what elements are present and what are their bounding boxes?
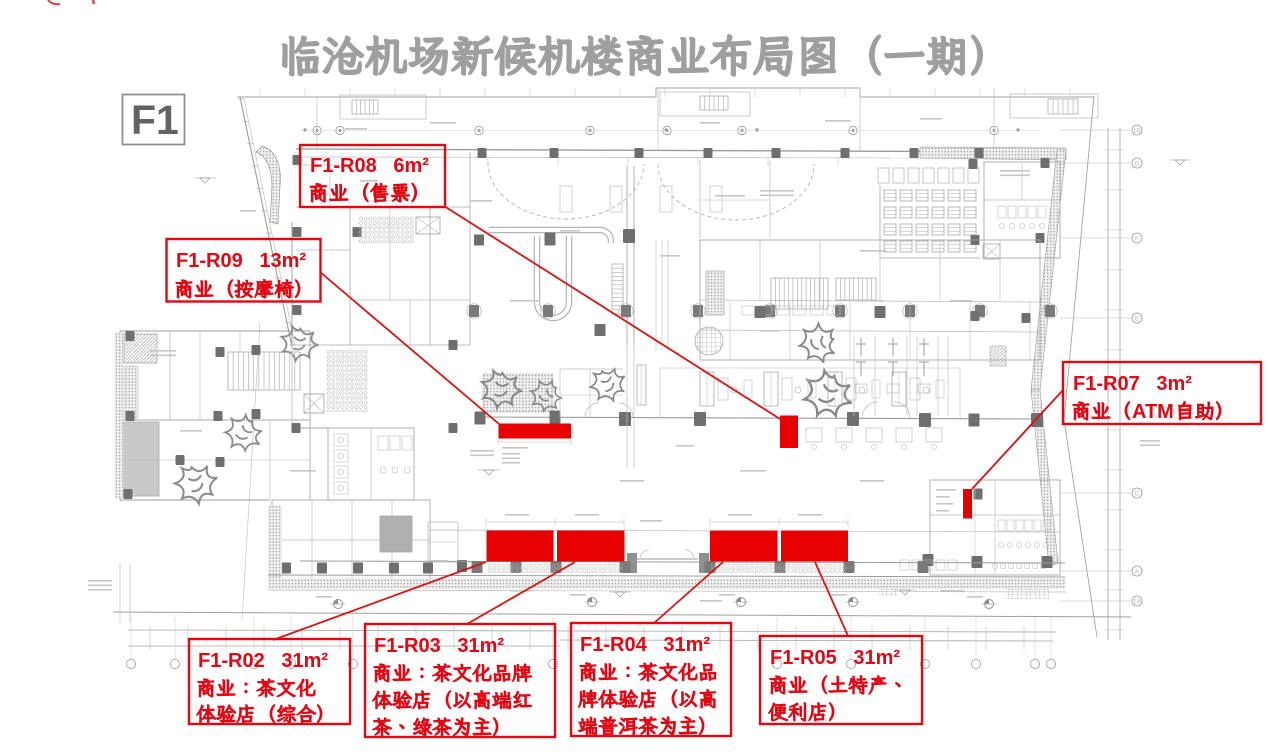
svg-text:1A: 1A [1133, 599, 1142, 606]
svg-text:F1-R08 6m²: F1-R08 6m² [310, 155, 429, 177]
svg-text:F1-R05 31m²: F1-R05 31m² [770, 647, 900, 669]
svg-text:1B: 1B [1133, 128, 1141, 135]
svg-text:F1-R04 31m²: F1-R04 31m² [580, 634, 710, 656]
svg-text:F1: F1 [131, 97, 179, 143]
svg-text:F1-R07 3m²: F1-R07 3m² [1073, 373, 1192, 395]
svg-text:C: C [1135, 491, 1140, 498]
svg-text:E: E [1135, 316, 1140, 323]
svg-text:F1-R02 31m²: F1-R02 31m² [198, 650, 328, 672]
svg-text:F1-R09 13m²: F1-R09 13m² [176, 250, 306, 272]
svg-text:F: F [1135, 236, 1139, 243]
svg-text:A: A [1135, 569, 1140, 576]
svg-text:G: G [1134, 161, 1139, 168]
svg-text:ATM: ATM [1132, 401, 1174, 423]
svg-text:F1-R03 31m²: F1-R03 31m² [374, 635, 504, 657]
